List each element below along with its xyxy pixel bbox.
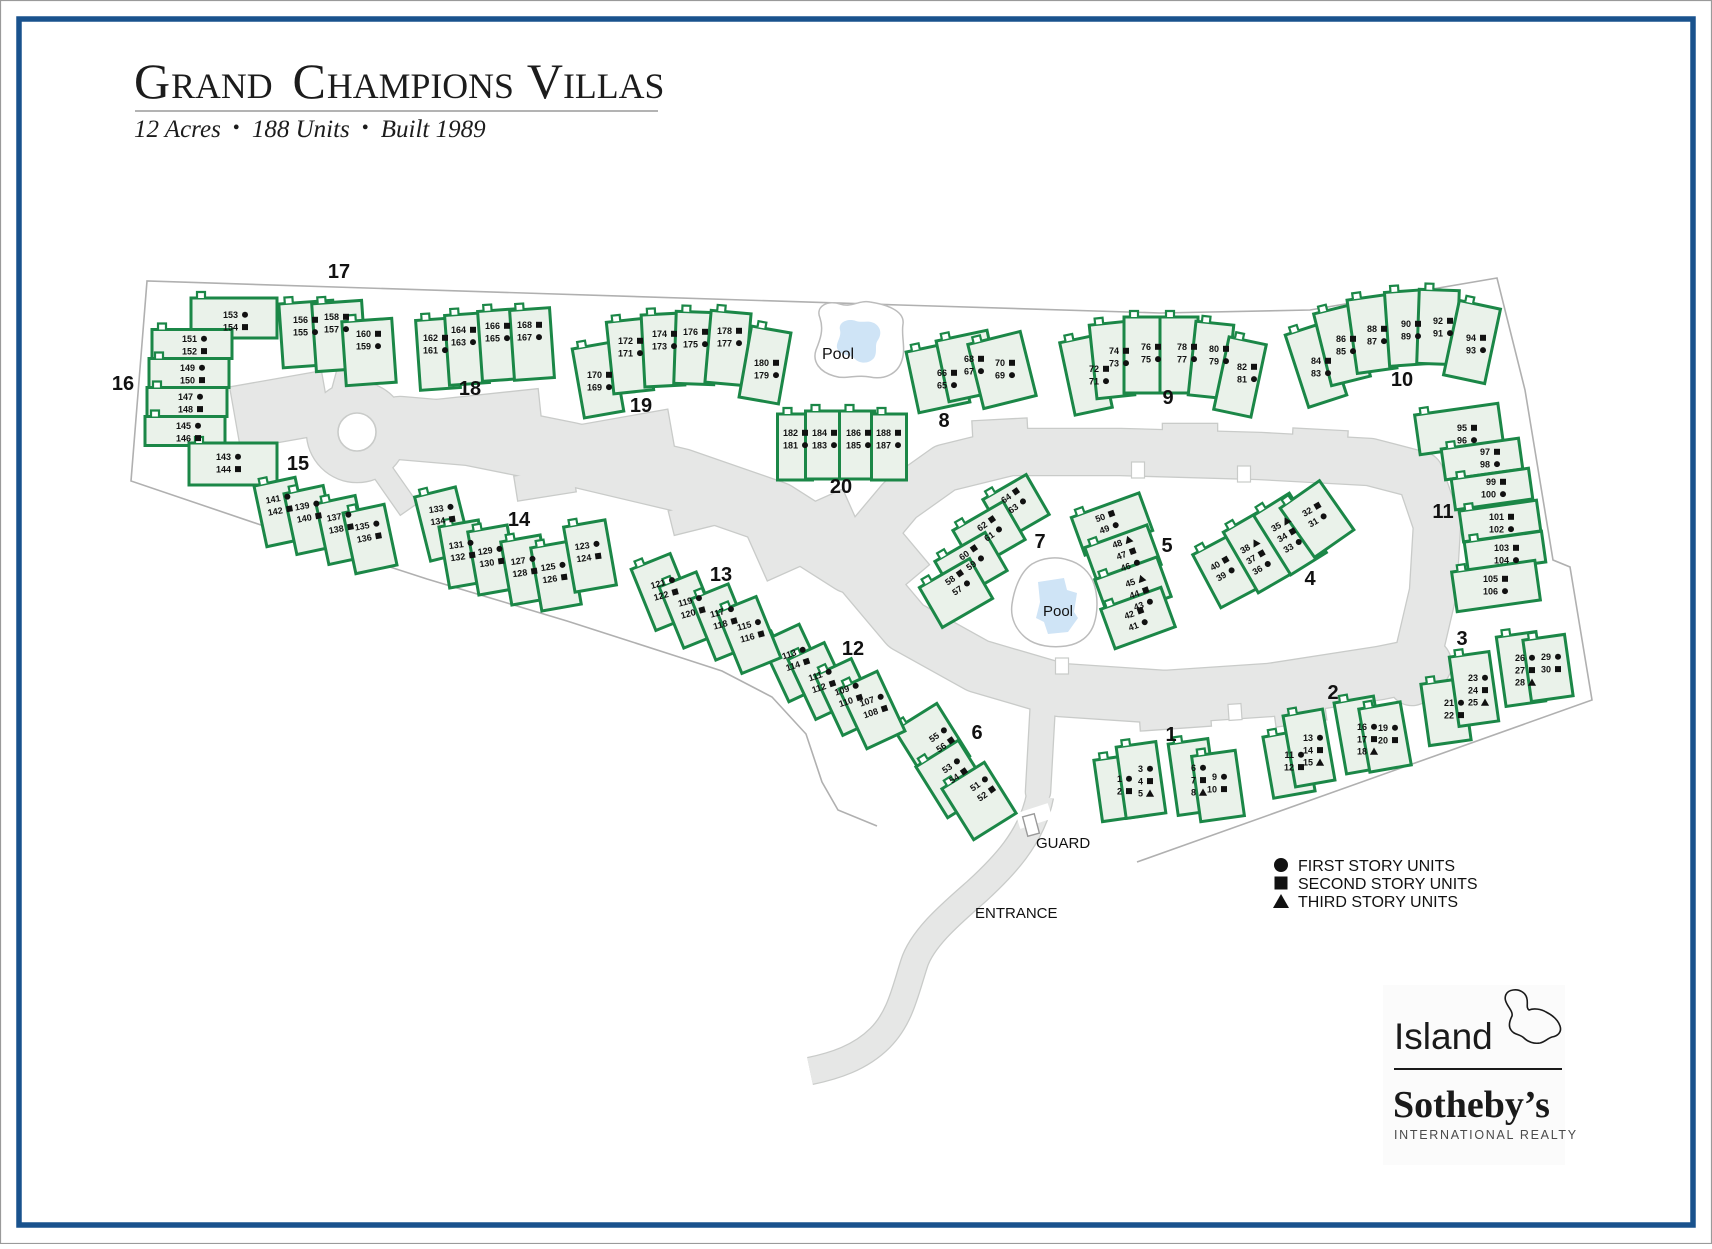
svg-text:83: 83: [1311, 368, 1321, 378]
svg-text:150: 150: [180, 375, 195, 385]
svg-text:128: 128: [512, 567, 528, 579]
svg-text:183: 183: [812, 440, 827, 450]
svg-text:171: 171: [618, 348, 633, 358]
svg-text:30: 30: [1541, 664, 1551, 674]
svg-text:13: 13: [710, 564, 732, 586]
svg-text:93: 93: [1466, 345, 1476, 355]
svg-text:175: 175: [683, 339, 698, 349]
svg-text:Sotheby’s: Sotheby’s: [1393, 1084, 1550, 1126]
svg-text:177: 177: [717, 338, 732, 348]
svg-text:179: 179: [754, 370, 769, 380]
svg-text:153: 153: [223, 310, 238, 320]
svg-text:186: 186: [846, 428, 861, 438]
svg-text:168: 168: [517, 320, 532, 330]
svg-text:16: 16: [1357, 722, 1367, 732]
svg-text:96: 96: [1457, 435, 1467, 445]
svg-text:17: 17: [1357, 734, 1367, 744]
svg-text:71: 71: [1089, 376, 1099, 386]
svg-text:105: 105: [1483, 574, 1498, 584]
svg-text:21: 21: [1444, 698, 1454, 708]
svg-text:106: 106: [1483, 586, 1498, 596]
svg-text:15: 15: [1303, 758, 1313, 768]
svg-text:13: 13: [1303, 733, 1313, 743]
svg-text:156: 156: [293, 315, 308, 325]
svg-text:10: 10: [1391, 369, 1413, 391]
svg-text:79: 79: [1209, 356, 1219, 366]
svg-text:6: 6: [971, 722, 982, 744]
svg-text:9: 9: [1212, 772, 1217, 782]
svg-text:187: 187: [876, 440, 891, 450]
svg-text:19: 19: [630, 395, 652, 417]
svg-text:18: 18: [459, 378, 481, 400]
svg-text:170: 170: [587, 370, 602, 380]
svg-text:73: 73: [1109, 358, 1119, 368]
svg-text:126: 126: [542, 573, 558, 585]
svg-text:24: 24: [1468, 685, 1478, 695]
svg-text:100: 100: [1481, 489, 1496, 499]
svg-text:11: 11: [1432, 501, 1453, 523]
svg-text:85: 85: [1336, 346, 1346, 356]
svg-text:GUARD: GUARD: [1036, 835, 1090, 852]
svg-text:185: 185: [846, 440, 861, 450]
svg-text:67: 67: [964, 366, 974, 376]
svg-text:3: 3: [1456, 628, 1467, 650]
svg-text:66: 66: [937, 368, 947, 378]
svg-text:FIRST STORY UNITS: FIRST STORY UNITS: [1298, 858, 1455, 875]
svg-text:16: 16: [112, 373, 134, 395]
svg-text:181: 181: [783, 440, 798, 450]
svg-text:133: 133: [428, 503, 444, 515]
svg-text:8: 8: [1191, 788, 1196, 798]
svg-text:Island: Island: [1394, 1016, 1493, 1057]
svg-text:84: 84: [1311, 356, 1321, 366]
svg-text:20: 20: [830, 476, 852, 498]
svg-text:104: 104: [1494, 555, 1509, 565]
svg-text:146: 146: [176, 433, 191, 443]
svg-text:124: 124: [576, 552, 592, 564]
svg-text:180: 180: [754, 358, 769, 368]
svg-text:68: 68: [964, 354, 974, 364]
svg-text:149: 149: [180, 363, 195, 373]
svg-text:99: 99: [1486, 477, 1496, 487]
svg-text:92: 92: [1433, 316, 1443, 326]
svg-text:5: 5: [1138, 789, 1143, 799]
svg-text:163: 163: [451, 337, 466, 347]
svg-text:176: 176: [683, 327, 698, 337]
svg-text:144: 144: [216, 464, 231, 474]
svg-text:127: 127: [510, 555, 526, 567]
svg-text:9: 9: [1162, 387, 1173, 409]
svg-text:7: 7: [1034, 531, 1045, 553]
svg-text:147: 147: [178, 392, 193, 402]
svg-text:151: 151: [182, 334, 197, 344]
svg-text:103: 103: [1494, 543, 1509, 553]
svg-text:THIRD STORY UNITS: THIRD STORY UNITS: [1298, 894, 1458, 911]
svg-text:161: 161: [423, 345, 438, 355]
svg-text:173: 173: [652, 341, 667, 351]
svg-text:90: 90: [1401, 319, 1411, 329]
svg-text:134: 134: [430, 515, 446, 527]
svg-text:19: 19: [1378, 723, 1388, 733]
svg-text:158: 158: [324, 312, 339, 322]
svg-text:20: 20: [1378, 735, 1388, 745]
svg-text:162: 162: [423, 333, 438, 343]
svg-text:152: 152: [182, 346, 197, 356]
svg-text:69: 69: [995, 370, 1005, 380]
svg-text:174: 174: [652, 329, 667, 339]
svg-text:18: 18: [1357, 747, 1367, 757]
svg-text:132: 132: [450, 551, 466, 563]
svg-text:23: 23: [1468, 673, 1478, 683]
svg-text:29: 29: [1541, 652, 1551, 662]
svg-text:159: 159: [356, 341, 371, 351]
svg-text:25: 25: [1468, 698, 1478, 708]
svg-text:94: 94: [1466, 333, 1476, 343]
svg-text:123: 123: [574, 540, 590, 552]
svg-text:ENTRANCE: ENTRANCE: [975, 905, 1058, 922]
svg-text:14: 14: [508, 509, 531, 531]
svg-text:82: 82: [1237, 362, 1247, 372]
svg-text:72: 72: [1089, 364, 1099, 374]
svg-text:184: 184: [812, 428, 827, 438]
svg-text:75: 75: [1141, 354, 1151, 364]
svg-text:28: 28: [1515, 678, 1525, 688]
svg-text:SECOND STORY UNITS: SECOND STORY UNITS: [1298, 876, 1478, 893]
svg-text:88: 88: [1367, 324, 1377, 334]
svg-text:157: 157: [324, 324, 339, 334]
svg-text:15: 15: [287, 453, 309, 475]
svg-text:INTERNATIONAL REALTY: INTERNATIONAL REALTY: [1394, 1128, 1578, 1142]
svg-text:77: 77: [1177, 354, 1187, 364]
svg-text:2: 2: [1327, 682, 1338, 704]
svg-text:12 Acres•188 Units•Built 1989: 12 Acres•188 Units•Built 1989: [134, 116, 486, 143]
svg-text:165: 165: [485, 333, 500, 343]
svg-text:7: 7: [1191, 775, 1196, 785]
svg-text:12: 12: [842, 638, 864, 660]
svg-text:3: 3: [1138, 764, 1143, 774]
svg-text:169: 169: [587, 382, 602, 392]
svg-text:178: 178: [717, 326, 732, 336]
svg-text:182: 182: [783, 428, 798, 438]
svg-text:155: 155: [293, 327, 308, 337]
svg-text:188: 188: [876, 428, 891, 438]
svg-text:Pool: Pool: [1043, 603, 1073, 620]
svg-text:Pool: Pool: [822, 346, 854, 363]
svg-text:27: 27: [1515, 665, 1525, 675]
svg-text:167: 167: [517, 332, 532, 342]
svg-text:160: 160: [356, 329, 371, 339]
svg-text:5: 5: [1161, 535, 1172, 557]
svg-text:80: 80: [1209, 344, 1219, 354]
svg-text:17: 17: [328, 261, 350, 283]
svg-text:4: 4: [1138, 776, 1143, 786]
svg-text:10: 10: [1207, 784, 1217, 794]
svg-text:22: 22: [1444, 710, 1454, 720]
svg-text:130: 130: [479, 557, 495, 569]
svg-text:89: 89: [1401, 331, 1411, 341]
svg-text:12: 12: [1284, 762, 1294, 772]
svg-text:14: 14: [1303, 745, 1313, 755]
svg-text:166: 166: [485, 321, 500, 331]
svg-text:87: 87: [1367, 336, 1377, 346]
svg-text:78: 78: [1177, 342, 1187, 352]
svg-text:11: 11: [1284, 750, 1294, 760]
svg-text:81: 81: [1237, 374, 1247, 384]
svg-text:98: 98: [1480, 459, 1490, 469]
svg-text:8: 8: [938, 410, 949, 432]
svg-text:125: 125: [540, 561, 556, 573]
svg-text:2: 2: [1117, 786, 1122, 796]
svg-text:164: 164: [451, 325, 466, 335]
svg-text:1: 1: [1117, 774, 1122, 784]
svg-text:129: 129: [477, 545, 493, 557]
svg-text:65: 65: [937, 380, 947, 390]
svg-text:86: 86: [1336, 334, 1346, 344]
svg-text:97: 97: [1480, 447, 1490, 457]
svg-text:4: 4: [1304, 568, 1316, 590]
svg-text:1: 1: [1165, 724, 1176, 746]
svg-text:101: 101: [1489, 512, 1504, 522]
svg-text:76: 76: [1141, 342, 1151, 352]
svg-text:145: 145: [176, 421, 191, 431]
svg-text:91: 91: [1433, 328, 1443, 338]
svg-text:172: 172: [618, 336, 633, 346]
svg-text:95: 95: [1457, 423, 1467, 433]
svg-text:131: 131: [448, 539, 464, 551]
svg-text:70: 70: [995, 358, 1005, 368]
svg-text:102: 102: [1489, 524, 1504, 534]
svg-text:148: 148: [178, 404, 193, 414]
svg-text:74: 74: [1109, 346, 1119, 356]
svg-text:26: 26: [1515, 653, 1525, 663]
svg-text:154: 154: [223, 322, 238, 332]
svg-text:143: 143: [216, 452, 231, 462]
svg-text:6: 6: [1191, 763, 1196, 773]
